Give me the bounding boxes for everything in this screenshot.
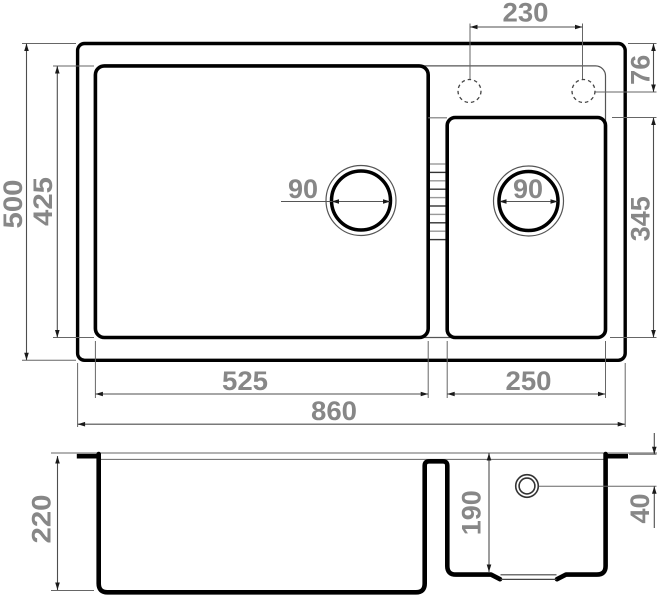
- svg-text:90: 90: [513, 174, 543, 204]
- svg-text:345: 345: [626, 196, 656, 241]
- svg-text:250: 250: [506, 366, 552, 396]
- svg-text:220: 220: [27, 495, 57, 544]
- svg-text:425: 425: [28, 177, 58, 226]
- svg-text:90: 90: [288, 174, 318, 204]
- svg-text:230: 230: [503, 0, 549, 28]
- svg-text:76: 76: [626, 55, 656, 85]
- svg-text:860: 860: [311, 396, 357, 426]
- svg-text:500: 500: [0, 180, 28, 229]
- svg-text:190: 190: [457, 490, 487, 535]
- svg-text:525: 525: [222, 366, 268, 396]
- svg-text:40: 40: [625, 493, 655, 523]
